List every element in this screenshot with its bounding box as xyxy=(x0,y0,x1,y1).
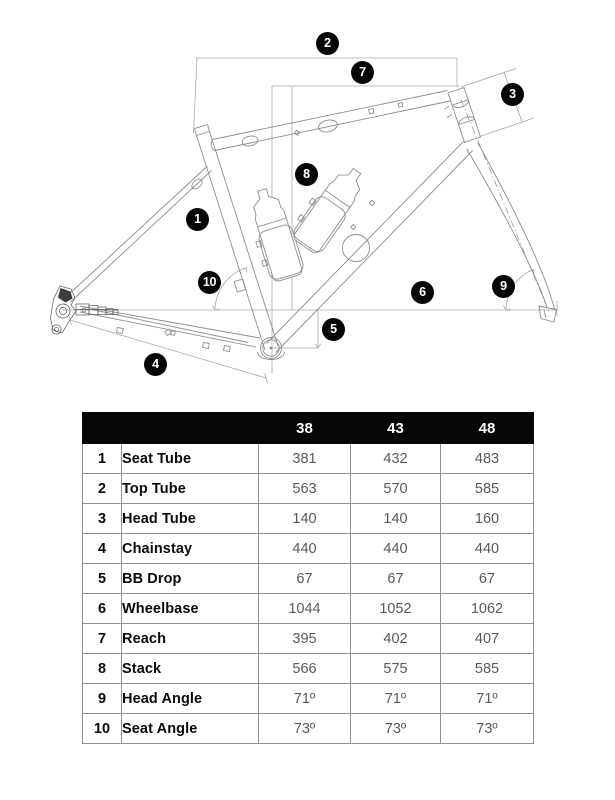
row-value: 71º xyxy=(441,684,534,714)
row-label: Stack xyxy=(122,654,259,684)
header-empty-cell xyxy=(83,413,122,444)
row-value: 563 xyxy=(259,474,351,504)
header-size-43: 43 xyxy=(351,413,441,444)
geometry-table: 38 43 48 1 Seat Tube 381 432 483 2 Top T… xyxy=(82,412,534,744)
row-number: 5 xyxy=(83,564,122,594)
table-row: 1 Seat Tube 381 432 483 xyxy=(83,444,534,474)
row-number: 4 xyxy=(83,534,122,564)
row-value: 407 xyxy=(441,624,534,654)
table-row: 4 Chainstay 440 440 440 xyxy=(83,534,534,564)
page: 1 2 3 4 5 6 7 8 9 10 38 43 48 1 Seat xyxy=(0,0,615,800)
row-value: 1044 xyxy=(259,594,351,624)
callout-seat-tube: 1 xyxy=(186,208,209,231)
row-value: 1062 xyxy=(441,594,534,624)
row-number: 2 xyxy=(83,474,122,504)
header-size-48: 48 xyxy=(441,413,534,444)
row-value: 432 xyxy=(351,444,441,474)
row-label: Seat Angle xyxy=(122,714,259,744)
callout-top-tube: 2 xyxy=(316,32,339,55)
row-value: 575 xyxy=(351,654,441,684)
frame-geometry-diagram: 1 2 3 4 5 6 7 8 9 10 xyxy=(0,0,615,400)
row-value: 585 xyxy=(441,654,534,684)
table-row: 9 Head Angle 71º 71º 71º xyxy=(83,684,534,714)
callout-seat-angle: 10 xyxy=(198,271,221,294)
row-label: Head Tube xyxy=(122,504,259,534)
row-value: 71º xyxy=(351,684,441,714)
row-value: 160 xyxy=(441,504,534,534)
row-label: BB Drop xyxy=(122,564,259,594)
row-value: 566 xyxy=(259,654,351,684)
row-value: 483 xyxy=(441,444,534,474)
row-value: 585 xyxy=(441,474,534,504)
row-label: Head Angle xyxy=(122,684,259,714)
callout-reach: 7 xyxy=(351,61,374,84)
row-number: 9 xyxy=(83,684,122,714)
row-label: Wheelbase xyxy=(122,594,259,624)
row-number: 8 xyxy=(83,654,122,684)
row-value: 67 xyxy=(259,564,351,594)
table-row: 5 BB Drop 67 67 67 xyxy=(83,564,534,594)
row-number: 6 xyxy=(83,594,122,624)
row-value: 440 xyxy=(259,534,351,564)
table-header-row: 38 43 48 xyxy=(83,413,534,444)
callout-head-angle: 9 xyxy=(492,275,515,298)
row-value: 395 xyxy=(259,624,351,654)
row-number: 1 xyxy=(83,444,122,474)
callout-bb-drop: 5 xyxy=(322,318,345,341)
row-value: 440 xyxy=(441,534,534,564)
row-label: Seat Tube xyxy=(122,444,259,474)
row-value: 570 xyxy=(351,474,441,504)
table-row: 8 Stack 566 575 585 xyxy=(83,654,534,684)
table-row: 3 Head Tube 140 140 160 xyxy=(83,504,534,534)
row-value: 73º xyxy=(259,714,351,744)
row-value: 140 xyxy=(351,504,441,534)
row-label: Chainstay xyxy=(122,534,259,564)
header-size-38: 38 xyxy=(259,413,351,444)
callout-wheelbase: 6 xyxy=(411,281,434,304)
row-value: 440 xyxy=(351,534,441,564)
row-number: 7 xyxy=(83,624,122,654)
row-value: 71º xyxy=(259,684,351,714)
row-number: 10 xyxy=(83,714,122,744)
table-row: 10 Seat Angle 73º 73º 73º xyxy=(83,714,534,744)
row-label: Reach xyxy=(122,624,259,654)
table-row: 6 Wheelbase 1044 1052 1062 xyxy=(83,594,534,624)
row-value: 402 xyxy=(351,624,441,654)
frame-drawing xyxy=(0,0,615,400)
row-value: 67 xyxy=(351,564,441,594)
row-label: Top Tube xyxy=(122,474,259,504)
callout-stack: 8 xyxy=(295,163,318,186)
row-value: 381 xyxy=(259,444,351,474)
header-empty-cell xyxy=(122,413,259,444)
row-value: 73º xyxy=(351,714,441,744)
row-value: 1052 xyxy=(351,594,441,624)
row-value: 73º xyxy=(441,714,534,744)
row-value: 67 xyxy=(441,564,534,594)
callout-chainstay: 4 xyxy=(144,353,167,376)
row-number: 3 xyxy=(83,504,122,534)
table-row: 2 Top Tube 563 570 585 xyxy=(83,474,534,504)
row-value: 140 xyxy=(259,504,351,534)
table-row: 7 Reach 395 402 407 xyxy=(83,624,534,654)
callout-head-tube: 3 xyxy=(501,83,524,106)
